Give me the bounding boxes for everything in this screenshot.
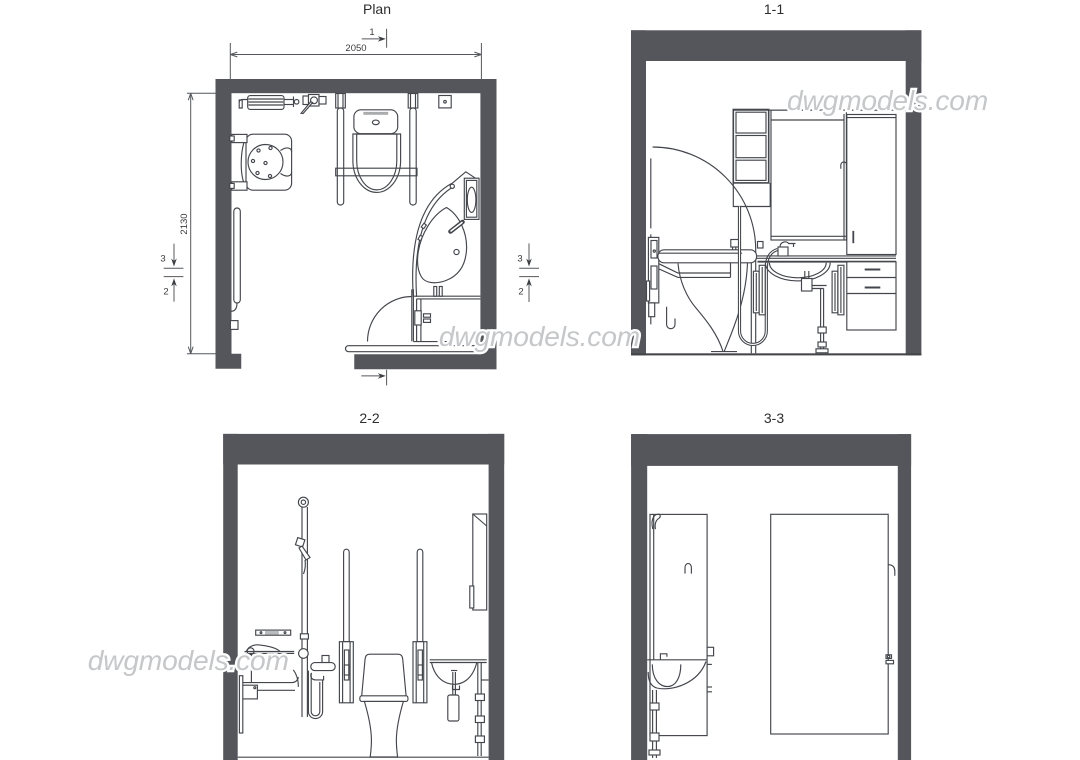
svg-text:3: 3 [517,254,522,265]
svg-text:dwgmodels.com: dwgmodels.com [787,84,988,116]
svg-text:2130: 2130 [179,213,190,234]
svg-text:Plan: Plan [363,1,391,17]
svg-text:2: 2 [518,287,523,298]
svg-text:dwgmodels.com: dwgmodels.com [439,320,640,352]
svg-text:3-3: 3-3 [764,410,784,426]
svg-text:2-2: 2-2 [359,410,379,426]
svg-text:2: 2 [163,287,168,298]
svg-text:3: 3 [160,254,165,265]
svg-text:2050: 2050 [345,43,366,54]
svg-text:1-1: 1-1 [764,1,784,17]
svg-text:1: 1 [369,27,374,38]
svg-text:dwgmodels.com: dwgmodels.com [88,644,289,676]
